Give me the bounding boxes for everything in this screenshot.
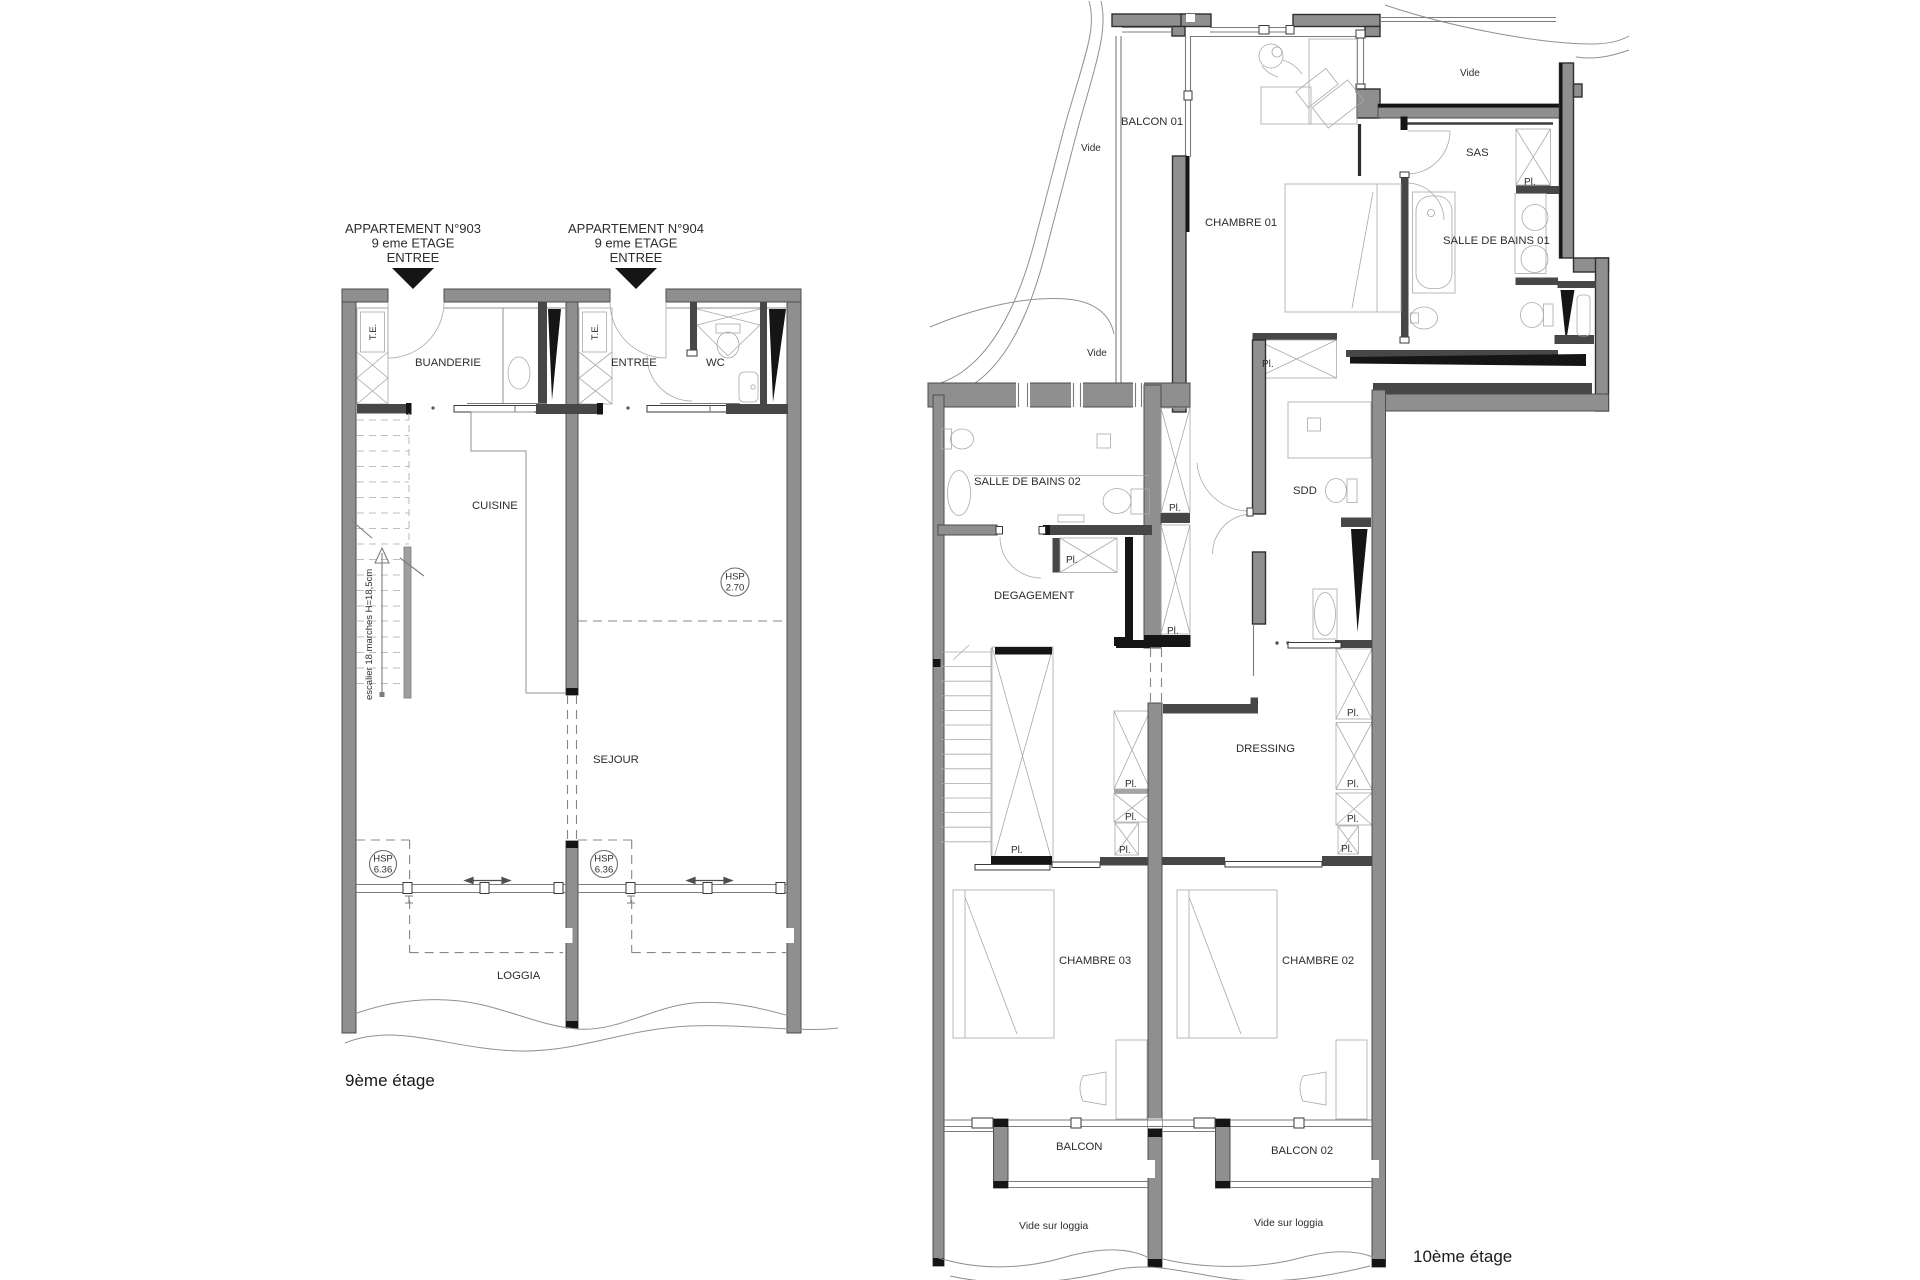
svg-text:Pl.: Pl. [1169, 503, 1181, 514]
svg-text:APPARTEMENT N°904: APPARTEMENT N°904 [568, 221, 704, 236]
svg-text:6.36: 6.36 [595, 865, 614, 876]
svg-text:Pl.: Pl. [1347, 779, 1359, 790]
svg-text:Pl.: Pl. [1347, 814, 1359, 825]
svg-text:Pl.: Pl. [1066, 555, 1078, 566]
svg-text:Pl.: Pl. [1125, 779, 1137, 790]
svg-text:Pl.: Pl. [1524, 177, 1536, 188]
svg-text:6.36: 6.36 [374, 865, 393, 876]
svg-text:HSP: HSP [594, 854, 614, 865]
svg-text:Pl.: Pl. [1347, 708, 1359, 719]
svg-text:Vide: Vide [1460, 68, 1480, 79]
svg-text:HSP: HSP [373, 854, 393, 865]
svg-text:HSP: HSP [725, 572, 745, 583]
svg-text:Vide: Vide [1081, 143, 1101, 154]
svg-text:LOGGIA: LOGGIA [497, 970, 541, 982]
svg-text:DRESSING: DRESSING [1236, 743, 1295, 755]
svg-text:SALLE DE BAINS 01: SALLE DE BAINS 01 [1443, 235, 1550, 247]
svg-text:Vide: Vide [1087, 348, 1107, 359]
svg-text:Vide sur loggia: Vide sur loggia [1254, 1217, 1323, 1229]
svg-text:T.E.: T.E. [590, 324, 601, 340]
svg-text:Pl.: Pl. [1125, 812, 1137, 823]
svg-text:T.E.: T.E. [368, 324, 379, 340]
svg-text:9 eme ETAGE: 9 eme ETAGE [595, 236, 678, 251]
svg-text:Pl.: Pl. [1167, 626, 1179, 637]
svg-text:Pl.: Pl. [1119, 845, 1131, 856]
svg-text:Vide sur loggia: Vide sur loggia [1019, 1220, 1088, 1232]
svg-text:ENTREE: ENTREE [610, 250, 663, 265]
svg-text:ENTREE: ENTREE [387, 250, 440, 265]
svg-text:SALLE DE BAINS 02: SALLE DE BAINS 02 [974, 476, 1081, 488]
svg-text:SDD: SDD [1293, 485, 1317, 497]
svg-text:BALCON: BALCON [1056, 1141, 1102, 1153]
svg-text:BUANDERIE: BUANDERIE [415, 357, 481, 369]
svg-text:SAS: SAS [1466, 147, 1489, 159]
svg-text:CHAMBRE 02: CHAMBRE 02 [1282, 955, 1354, 967]
svg-text:BALCON 01: BALCON 01 [1121, 116, 1183, 128]
svg-text:CHAMBRE 03: CHAMBRE 03 [1059, 955, 1131, 967]
svg-text:9ème étage: 9ème étage [345, 1071, 435, 1090]
svg-text:SEJOUR: SEJOUR [593, 754, 639, 766]
svg-text:Pl.: Pl. [1341, 844, 1353, 855]
svg-text:2.70: 2.70 [726, 583, 745, 594]
svg-text:APPARTEMENT N°903: APPARTEMENT N°903 [345, 221, 481, 236]
svg-text:BALCON 02: BALCON 02 [1271, 1145, 1333, 1157]
svg-text:Pl.: Pl. [1262, 359, 1274, 370]
svg-text:escalier 18 marches H=18,5cm: escalier 18 marches H=18,5cm [364, 569, 375, 700]
svg-text:9 eme ETAGE: 9 eme ETAGE [372, 236, 455, 251]
svg-text:CUISINE: CUISINE [472, 500, 518, 512]
svg-text:Pl.: Pl. [1011, 845, 1023, 856]
svg-text:DEGAGEMENT: DEGAGEMENT [994, 590, 1074, 602]
svg-text:10ème étage: 10ème étage [1413, 1247, 1512, 1266]
svg-text:CHAMBRE 01: CHAMBRE 01 [1205, 217, 1277, 229]
svg-text:WC: WC [706, 357, 725, 369]
svg-text:ENTREE: ENTREE [611, 357, 657, 369]
